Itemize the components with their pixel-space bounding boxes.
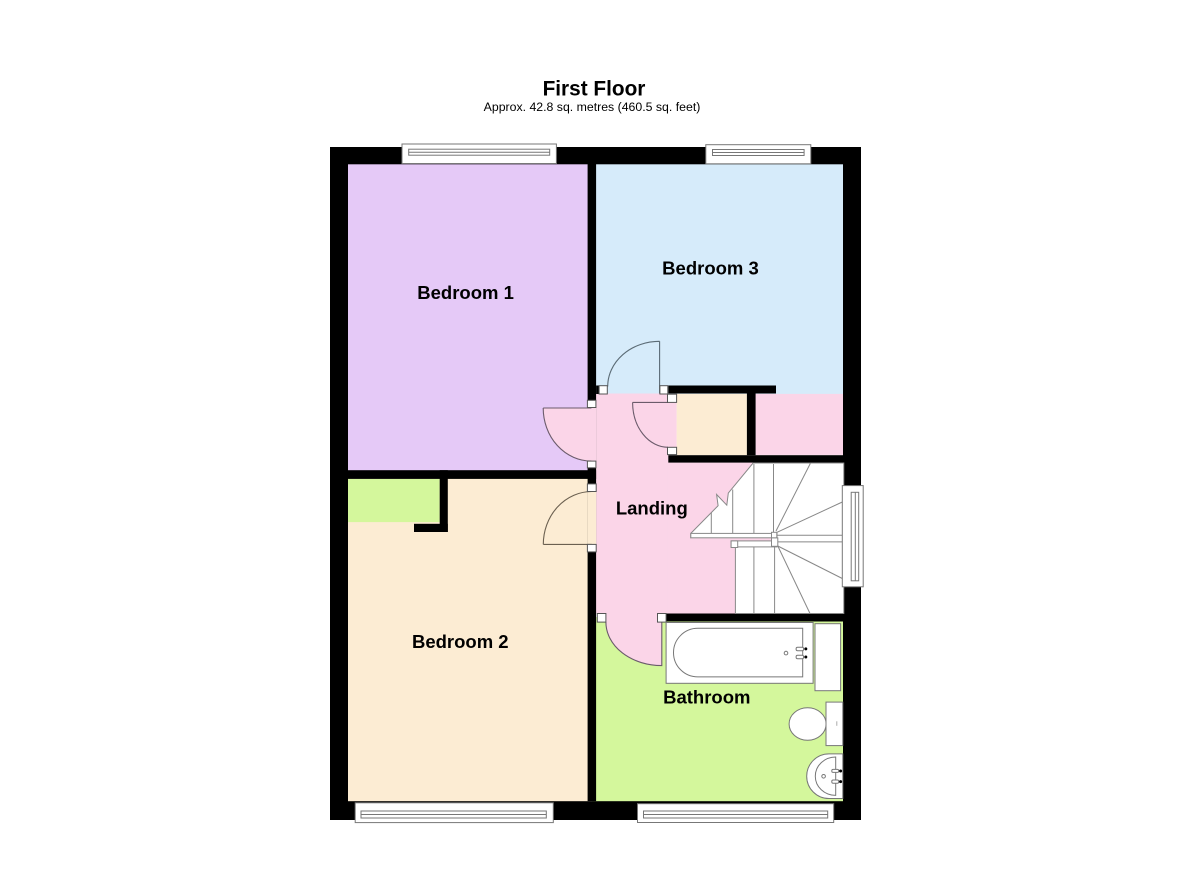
svg-text:Landing: Landing	[616, 498, 688, 519]
svg-text:Bathroom: Bathroom	[663, 687, 750, 708]
svg-text:Bedroom 1: Bedroom 1	[417, 282, 514, 303]
svg-text:First Floor: First Floor	[543, 77, 646, 100]
svg-text:Bedroom 3: Bedroom 3	[662, 258, 759, 279]
svg-text:Approx. 42.8 sq. metres (460.5: Approx. 42.8 sq. metres (460.5 sq. feet)	[484, 100, 701, 114]
svg-text:Bedroom 2: Bedroom 2	[412, 631, 509, 652]
